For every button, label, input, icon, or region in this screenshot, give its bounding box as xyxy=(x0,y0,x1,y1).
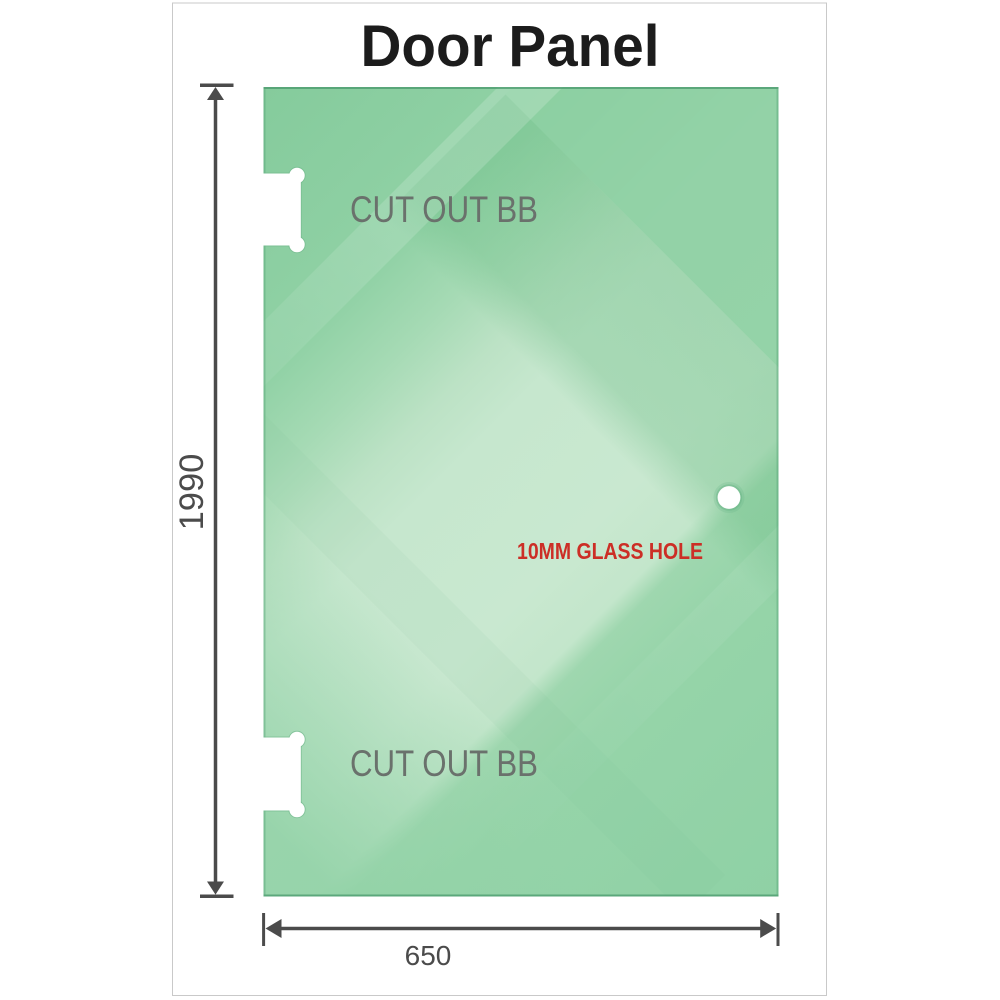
svg-text:CUT OUT BB: CUT OUT BB xyxy=(350,743,538,784)
svg-text:650: 650 xyxy=(405,940,452,971)
svg-text:Door Panel: Door Panel xyxy=(361,14,660,79)
svg-text:1990: 1990 xyxy=(173,454,211,531)
svg-text:CUT OUT BB: CUT OUT BB xyxy=(350,189,538,230)
svg-text:10MM GLASS HOLE: 10MM GLASS HOLE xyxy=(517,538,703,564)
